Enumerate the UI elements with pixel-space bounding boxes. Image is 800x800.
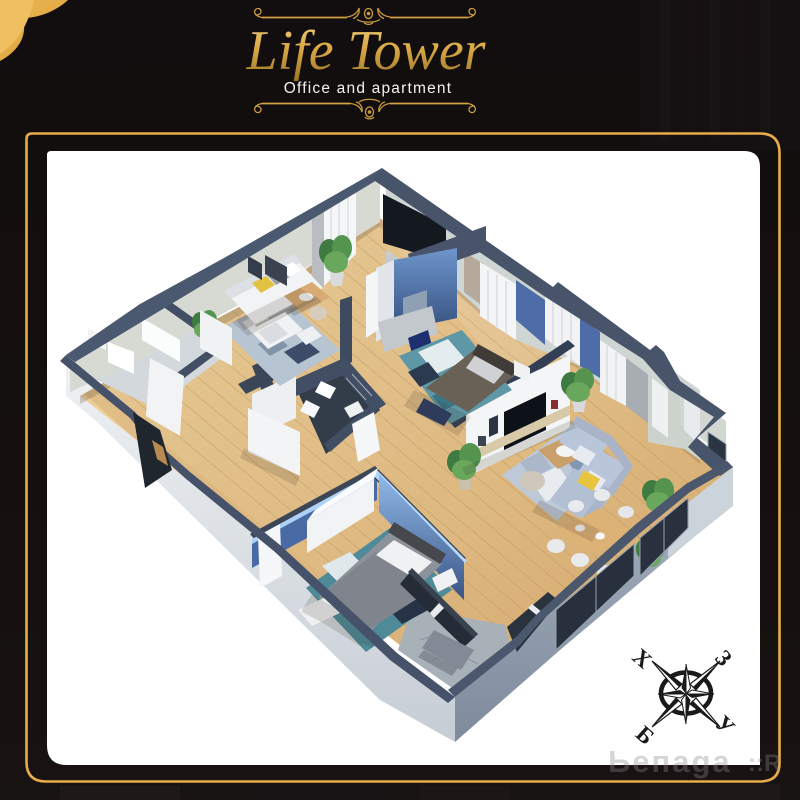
svg-text:::R: ::R xyxy=(748,750,781,777)
svg-text:Office and apartment: Office and apartment xyxy=(284,80,452,97)
svg-text:Life Tower: Life Tower xyxy=(245,20,485,82)
svg-text:Ьепаgа: Ьепаgа xyxy=(608,744,732,779)
